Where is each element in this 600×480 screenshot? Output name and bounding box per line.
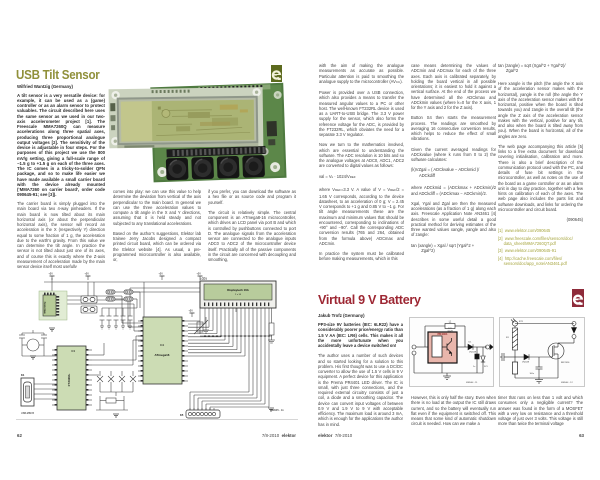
svg-text:100u: 100u: [530, 373, 534, 375]
svg-text:1N4148: 1N4148: [469, 352, 477, 354]
svg-text:090544 - 12: 090544 - 12: [561, 382, 573, 384]
svg-text:Displaytech 16A: Displaytech 16A: [227, 288, 249, 292]
svg-text:+5V: +5V: [159, 273, 164, 276]
svg-text:PR4401: PR4401: [437, 332, 448, 336]
svg-text:090645 - 11: 090645 - 11: [270, 408, 284, 412]
svg-text:IRF7416: IRF7416: [561, 362, 570, 364]
svg-text:USB-MINI B: USB-MINI B: [21, 412, 34, 415]
svg-text:IC3: IC3: [71, 349, 76, 353]
svg-text:IC2: IC2: [160, 343, 165, 347]
svg-text:K1: K1: [21, 373, 25, 377]
svg-text:+5V: +5V: [49, 273, 54, 276]
svg-text:+5V: +5V: [197, 273, 202, 276]
svg-text:2 x 16: 2 x 16: [235, 294, 242, 296]
svg-text:1u: 1u: [473, 366, 475, 368]
svg-text:LCD1: LCD1: [200, 277, 207, 281]
svg-text:K5: K5: [180, 413, 184, 417]
svg-text:090544 - 11: 090544 - 11: [466, 382, 478, 384]
svg-text:FT232RL: FT232RL: [67, 373, 71, 386]
svg-text:10uH: 10uH: [447, 331, 453, 333]
svg-text:MMA7260Q: MMA7260Q: [44, 301, 47, 313]
svg-text:+5V: +5V: [85, 273, 90, 276]
svg-text:ATmega16: ATmega16: [155, 353, 170, 357]
svg-text:1N4148: 1N4148: [522, 362, 530, 364]
svg-text:+5V: +5V: [189, 310, 194, 313]
